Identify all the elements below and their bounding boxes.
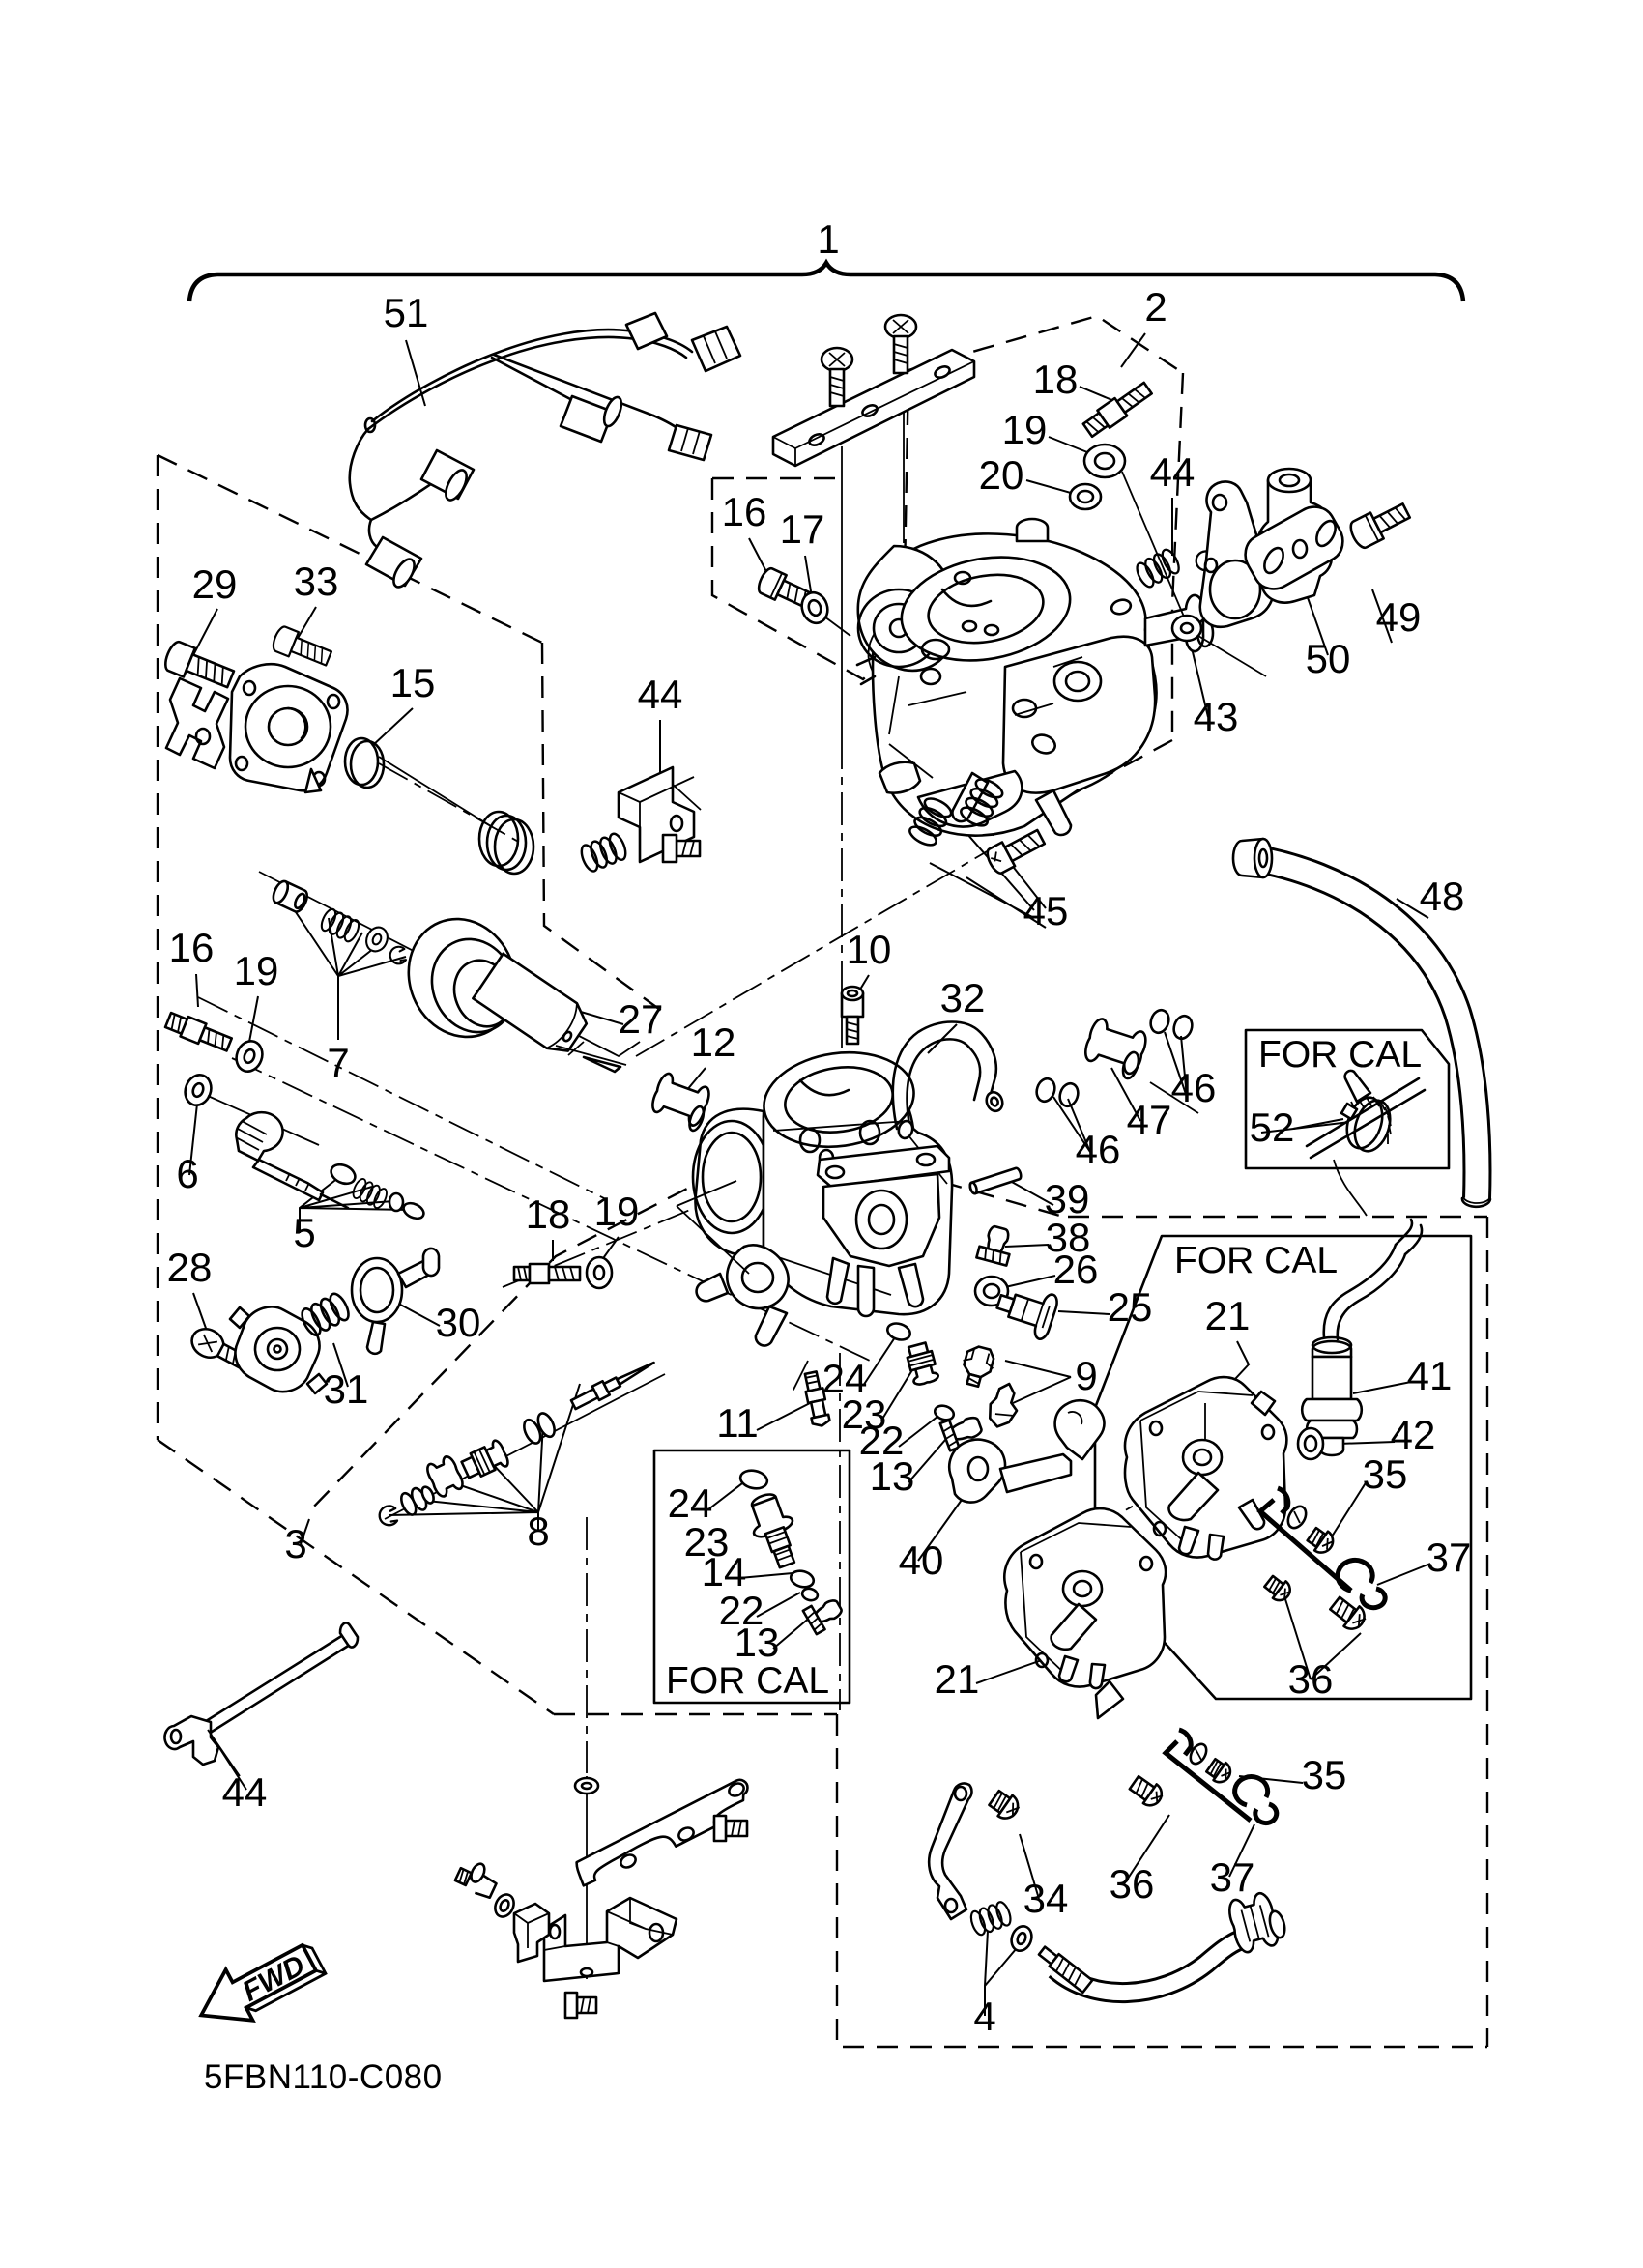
svg-text:52: 52 <box>1250 1105 1295 1150</box>
svg-text:10: 10 <box>847 927 892 972</box>
svg-text:9: 9 <box>1075 1353 1097 1398</box>
svg-text:37: 37 <box>1427 1535 1472 1580</box>
svg-text:50: 50 <box>1306 636 1351 681</box>
svg-text:12: 12 <box>691 1019 736 1065</box>
svg-text:FOR CAL: FOR CAL <box>1174 1240 1338 1281</box>
svg-text:34: 34 <box>1023 1876 1069 1921</box>
svg-text:1: 1 <box>817 216 839 262</box>
svg-text:44: 44 <box>1150 449 1196 495</box>
svg-text:15: 15 <box>390 660 436 705</box>
svg-text:44: 44 <box>222 1769 268 1815</box>
svg-text:35: 35 <box>1363 1451 1408 1497</box>
svg-text:30: 30 <box>436 1300 481 1345</box>
svg-text:42: 42 <box>1391 1412 1436 1457</box>
svg-text:FOR CAL: FOR CAL <box>1258 1034 1422 1076</box>
svg-text:18: 18 <box>1033 357 1079 402</box>
svg-text:44: 44 <box>638 672 683 717</box>
svg-text:35: 35 <box>1302 1752 1347 1797</box>
svg-text:47: 47 <box>1127 1097 1172 1142</box>
svg-text:32: 32 <box>940 975 986 1020</box>
svg-text:43: 43 <box>1194 694 1239 739</box>
svg-text:28: 28 <box>167 1245 213 1290</box>
svg-text:11: 11 <box>716 1400 759 1446</box>
svg-text:25: 25 <box>1108 1284 1153 1330</box>
svg-text:21: 21 <box>935 1656 980 1702</box>
svg-text:13: 13 <box>870 1453 915 1499</box>
svg-text:16: 16 <box>169 925 215 970</box>
svg-text:51: 51 <box>384 290 429 335</box>
svg-text:48: 48 <box>1420 874 1465 919</box>
svg-text:6: 6 <box>176 1151 198 1196</box>
svg-text:33: 33 <box>294 559 339 604</box>
svg-text:19: 19 <box>1002 407 1048 452</box>
svg-text:27: 27 <box>619 996 664 1042</box>
svg-text:21: 21 <box>1205 1293 1251 1338</box>
svg-text:40: 40 <box>899 1537 944 1583</box>
svg-text:18: 18 <box>526 1191 571 1237</box>
svg-text:19: 19 <box>594 1189 640 1234</box>
svg-text:2: 2 <box>1144 284 1167 330</box>
svg-text:37: 37 <box>1210 1854 1255 1900</box>
svg-text:31: 31 <box>324 1366 369 1412</box>
svg-text:5FBN110-C080: 5FBN110-C080 <box>204 2058 443 2096</box>
svg-text:16: 16 <box>722 489 767 534</box>
svg-text:5: 5 <box>293 1210 315 1255</box>
svg-text:13: 13 <box>735 1620 780 1665</box>
svg-text:36: 36 <box>1110 1861 1155 1907</box>
svg-text:20: 20 <box>979 452 1024 498</box>
svg-text:3: 3 <box>284 1521 306 1566</box>
svg-text:19: 19 <box>234 948 279 993</box>
svg-text:41: 41 <box>1407 1353 1453 1398</box>
svg-text:FOR CAL: FOR CAL <box>666 1660 829 1702</box>
svg-text:26: 26 <box>1053 1247 1099 1292</box>
svg-text:29: 29 <box>192 561 238 607</box>
svg-text:17: 17 <box>780 506 825 552</box>
svg-text:7: 7 <box>327 1040 349 1085</box>
